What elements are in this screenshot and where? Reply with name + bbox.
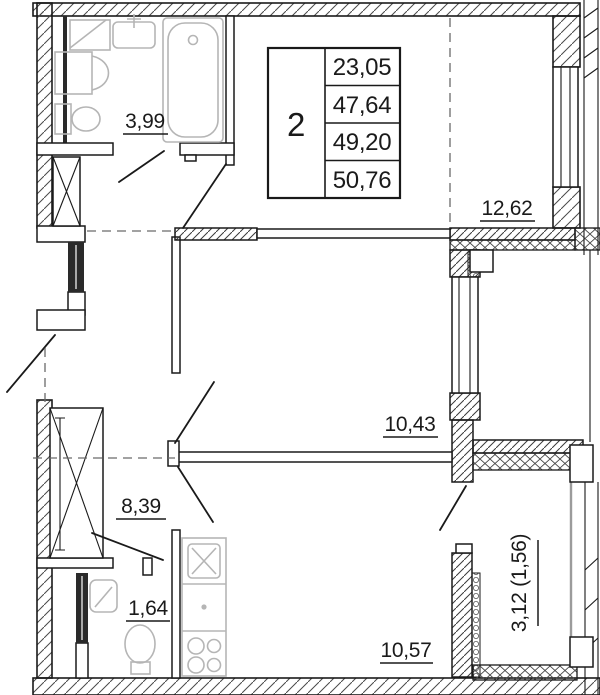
table-rooms-count: 2 [287,106,305,143]
apartment-info-table: 2 23,05 47,64 49,20 50,76 [268,48,400,198]
kitchen-door [178,467,213,522]
living-room-door [183,164,226,228]
table-area-reduced: 49,20 [333,129,392,156]
room-label-bathroom: 3,99 [125,110,165,133]
interior-walls [37,16,472,678]
entrance-door [7,335,55,392]
table-area-full: 50,76 [333,167,392,194]
toilet-icon [55,104,100,134]
wc-fixtures [90,580,155,674]
balcony-door [440,486,466,530]
wc-window [76,573,88,643]
table-area-living: 23,05 [333,54,392,81]
bathtub-icon [163,18,223,142]
floor-plan: 3,99 12,62 10,43 8,39 1,64 10,57 3,12 (1… [0,0,600,695]
kitchen-fixtures [182,538,226,676]
bedroom-window [452,277,478,393]
room-label-kitchen: 10,57 [380,639,431,662]
stove-icon [188,638,221,673]
room-label-hallway: 8,39 [121,495,161,518]
vent-shaft-icon [53,157,80,226]
room-label-wc: 1,64 [128,597,168,620]
living-room-window [553,67,578,187]
sink-icon [113,14,155,48]
worktop-dot [201,604,206,609]
floor-plan-canvas: 3,99 12,62 10,43 8,39 1,64 10,57 3,12 (1… [0,0,600,695]
wardrobe-icon [50,408,103,558]
small-sink-icon [90,580,117,612]
adjacent-structures [584,0,598,695]
toilet-icon [125,625,155,674]
bathroom-door [119,151,164,182]
kitchen-sink-icon [188,544,220,578]
hallway-window [68,242,84,292]
room-label-bedroom: 10,43 [384,413,435,436]
balcony-glazing [570,445,593,667]
shelf-icon [70,20,110,50]
bedroom-door [175,382,214,443]
table-area-total: 47,64 [333,92,392,119]
room-label-living-room: 12,62 [481,197,532,220]
room-label-balcony: 3,12 (1,56) [508,534,531,632]
